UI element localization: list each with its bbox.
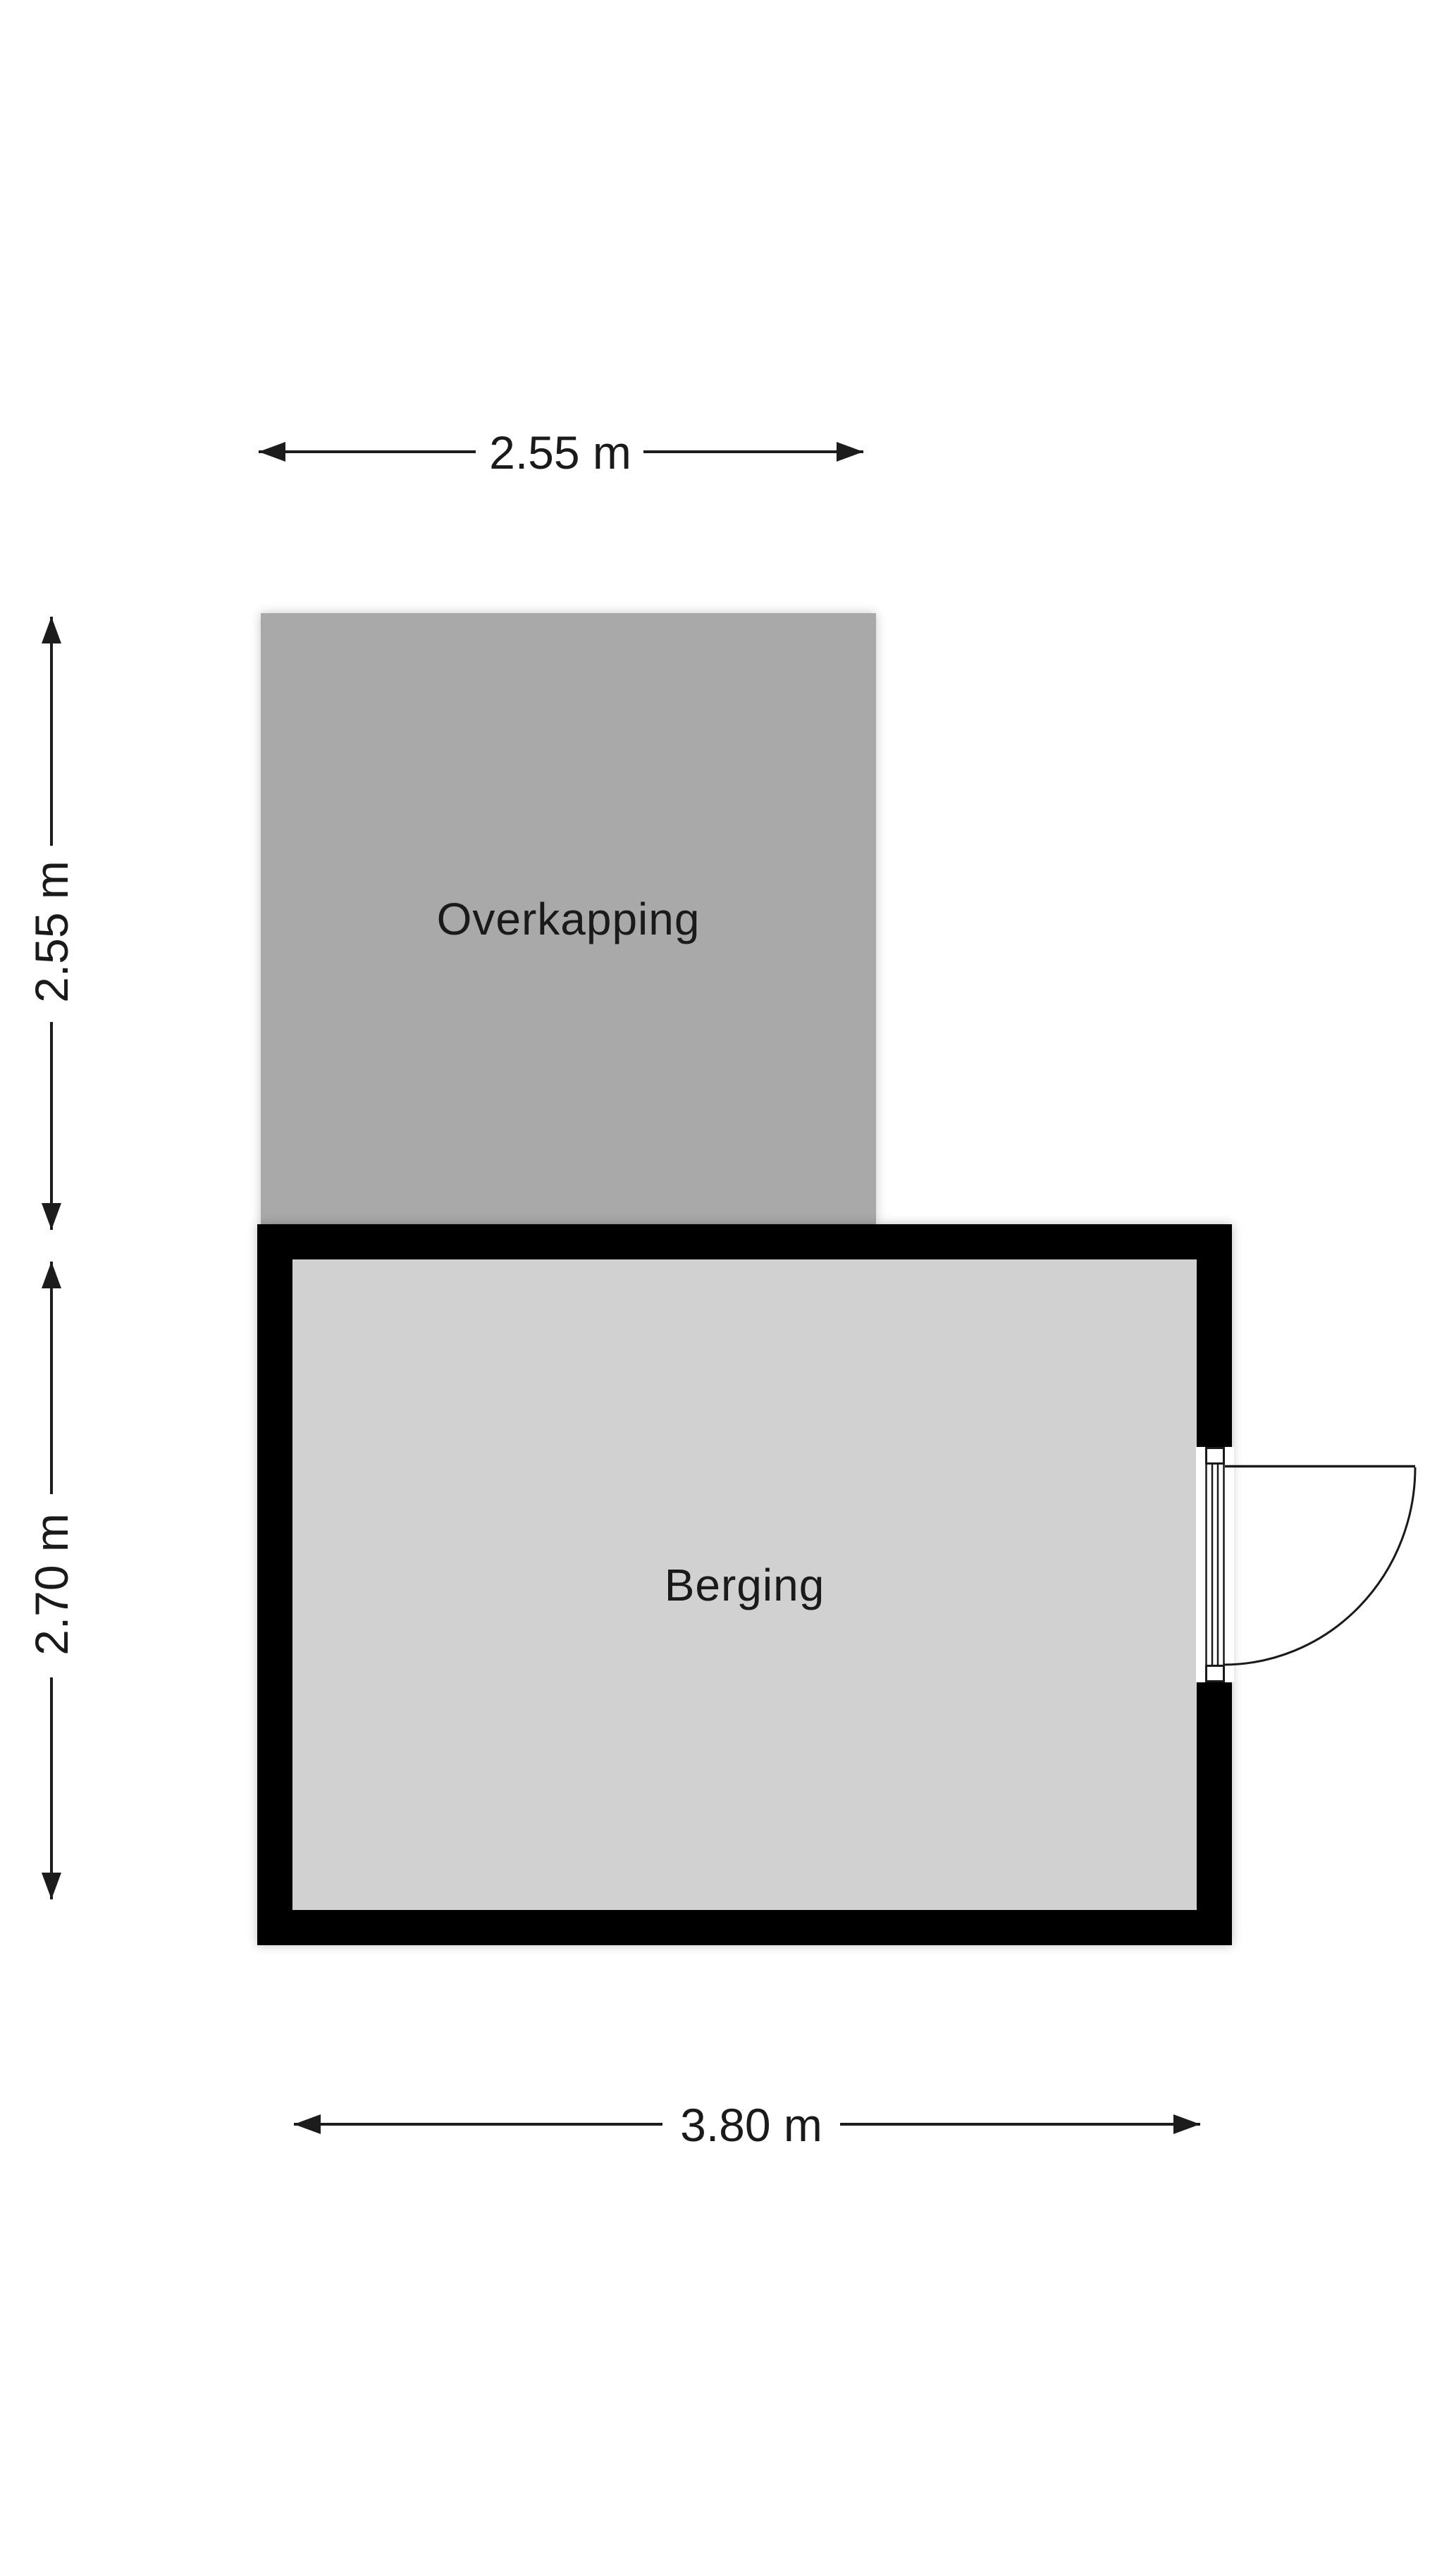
dimension-line — [50, 1262, 53, 1494]
dimension-line — [294, 2123, 662, 2126]
dimension-top-label: 2.55 m — [489, 429, 631, 476]
room-overkapping-label: Overkapping — [437, 896, 701, 942]
arrow-up-icon — [42, 617, 61, 643]
dimension-bottom-label: 3.80 m — [680, 2102, 822, 2148]
floorplan-canvas: 2.55 m 2.55 m 2.70 m 3.80 m Overkapping … — [0, 0, 1449, 2576]
room-berging-label: Berging — [665, 1563, 825, 1608]
arrow-right-icon — [837, 442, 863, 462]
door-frame-bottom — [1207, 1666, 1224, 1682]
door-frame-top — [1207, 1448, 1224, 1464]
door-swing — [1191, 1441, 1431, 1691]
arrow-down-icon — [42, 1873, 61, 1899]
dimension-line — [50, 1677, 53, 1899]
arrow-left-icon — [259, 442, 285, 462]
dimension-left-upper-label: 2.55 m — [28, 861, 75, 1003]
room-berging-floor: Berging — [292, 1259, 1197, 1910]
room-berging-walls: Berging — [257, 1224, 1232, 1945]
dimension-left-lower-label: 2.70 m — [28, 1513, 75, 1656]
dimension-line — [259, 450, 476, 453]
arrow-down-icon — [42, 1203, 61, 1230]
arrow-right-icon — [1173, 2114, 1200, 2134]
door-swing-arc — [1224, 1467, 1416, 1665]
dimension-line — [50, 1022, 53, 1230]
dimension-line — [50, 617, 53, 846]
room-overkapping: Overkapping — [261, 613, 876, 1224]
dimension-line — [840, 2123, 1200, 2126]
arrow-up-icon — [42, 1262, 61, 1288]
arrow-left-icon — [294, 2114, 321, 2134]
dimension-line — [643, 450, 863, 453]
door-opening — [1196, 1447, 1234, 1682]
